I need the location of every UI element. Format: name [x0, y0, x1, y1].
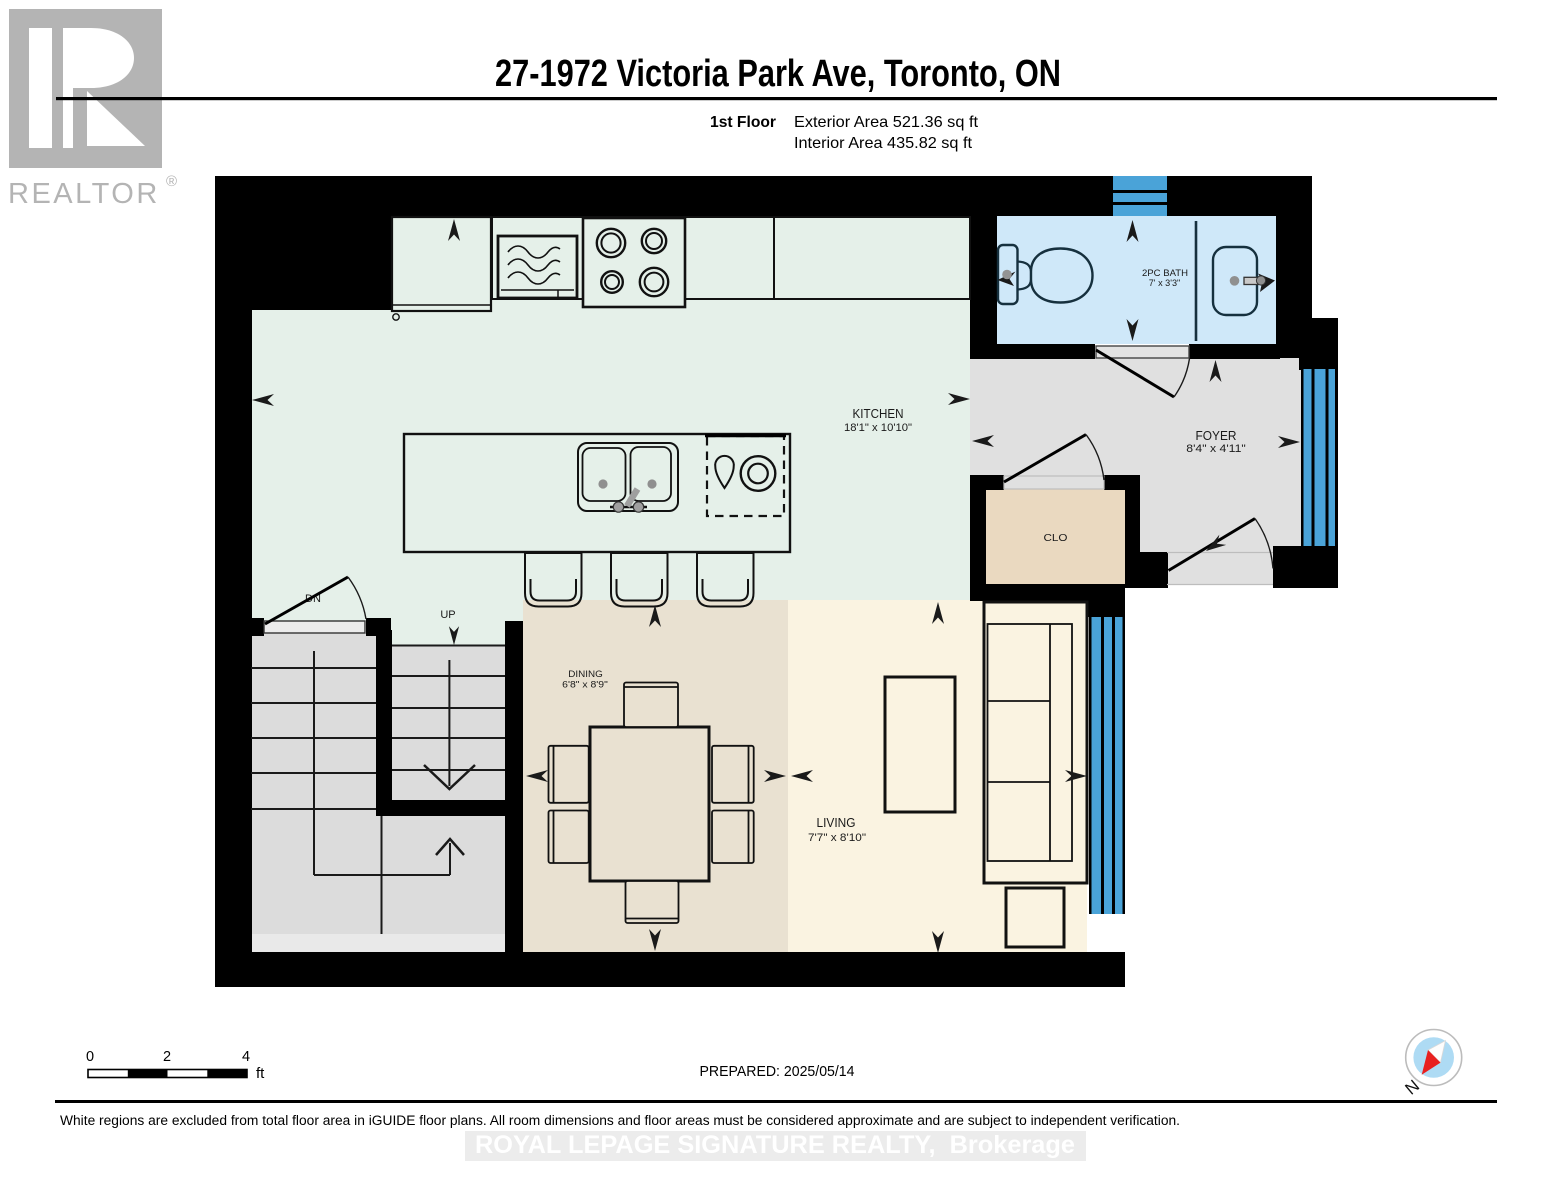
svg-text:PREPARED: 2025/05/14: PREPARED: 2025/05/14: [700, 1063, 855, 1080]
svg-text:ROYAL LEPAGE SIGNATURE REALTY,: ROYAL LEPAGE SIGNATURE REALTY, Brokerage: [475, 1131, 1075, 1159]
svg-text:27-1972 Victoria Park Ave, Tor: 27-1972 Victoria Park Ave, Toronto, ON: [495, 53, 1061, 95]
svg-text:DINING: DINING: [568, 669, 603, 680]
svg-text:White regions are excluded fro: White regions are excluded from total fl…: [60, 1113, 1180, 1128]
svg-text:FOYER: FOYER: [1196, 429, 1237, 443]
svg-text:ft: ft: [256, 1065, 265, 1082]
svg-text:1st Floor: 1st Floor: [710, 114, 776, 131]
svg-text:2: 2: [163, 1049, 171, 1065]
svg-text:0: 0: [86, 1049, 94, 1065]
svg-text:Interior Area 435.82 sq ft: Interior Area 435.82 sq ft: [794, 135, 973, 152]
svg-text:KITCHEN: KITCHEN: [853, 406, 904, 421]
svg-text:LIVING: LIVING: [817, 816, 856, 830]
svg-text:6'8" x 8'9": 6'8" x 8'9": [562, 680, 608, 691]
svg-text:4: 4: [242, 1049, 250, 1065]
svg-text:8'4" x 4'11": 8'4" x 4'11": [1186, 443, 1246, 455]
svg-text:18'1" x 10'10": 18'1" x 10'10": [844, 422, 912, 434]
svg-text:®: ®: [166, 173, 177, 190]
svg-text:Exterior Area 521.36 sq ft: Exterior Area 521.36 sq ft: [794, 114, 979, 131]
svg-text:UP: UP: [440, 609, 455, 621]
svg-text:7' x 3'3": 7' x 3'3": [1149, 278, 1181, 289]
svg-text:REALTOR: REALTOR: [8, 178, 160, 210]
svg-text:7'7" x 8'10": 7'7" x 8'10": [808, 832, 866, 844]
svg-text:CLO: CLO: [1044, 533, 1068, 544]
